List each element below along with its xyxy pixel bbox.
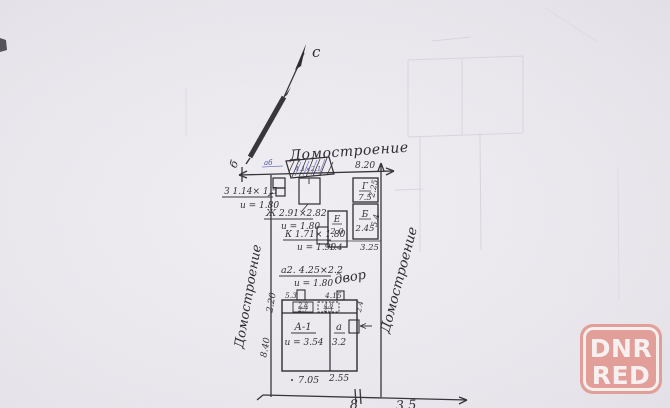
building-a-area: 3.2 [332,338,347,348]
building-a1-letter: А-1 [293,322,311,333]
note-a2-line2: и = 1.80 [294,279,333,289]
compass-label: с [312,43,321,61]
bottom-fragment-2: 3.5 [395,398,416,408]
blue-note-size: 4.1×2.1 [294,165,321,173]
site-plan-drawing: с б Домостроение Домостроение Домостроен… [0,0,670,408]
note-zh-line1: Ж 2.91×2.82 [265,209,327,219]
watermark-dnr-red: DNR RED [580,324,662,394]
dim-house-top-left: 5.3 [285,291,297,300]
dim-top: 8.20 [355,161,375,171]
building-b-area: 2.45 [355,224,375,234]
watermark-line2: RED [592,361,651,390]
building-b-letter: Б [361,210,369,220]
bottom-fragment-1: 8 [349,398,358,408]
note-z-line1: З 1.14× 1.5 [224,187,277,197]
building-e-letter: Е [333,215,341,225]
scanned-plan-page: с б Домостроение Домостроение Домостроен… [0,0,670,408]
dim-house-top-right: 4.15 [324,291,342,300]
dim-cell-right-bot: 2.1 [323,307,334,314]
dim-bottom-right: 2.55 [328,374,349,384]
dim-cell-left-bot: 2.7 [297,307,308,314]
building-g-area: 7.5 [358,193,372,203]
dim-row-right: 3.25 [360,243,379,253]
building-a1-height: и = 3.54 [284,338,323,348]
building-g-letter: Г [361,182,369,192]
edge-ink-mark [0,38,7,52]
dim-bottom-left: 7.05 [298,375,319,386]
building-a-letter: а [336,322,342,333]
note-k-line2: и = 1.90 [297,243,336,253]
note-k-line1: К 1.71× 1.80 [284,230,346,240]
blue-note-small: аб [264,159,273,167]
watermark-line1: DNR [590,334,652,363]
